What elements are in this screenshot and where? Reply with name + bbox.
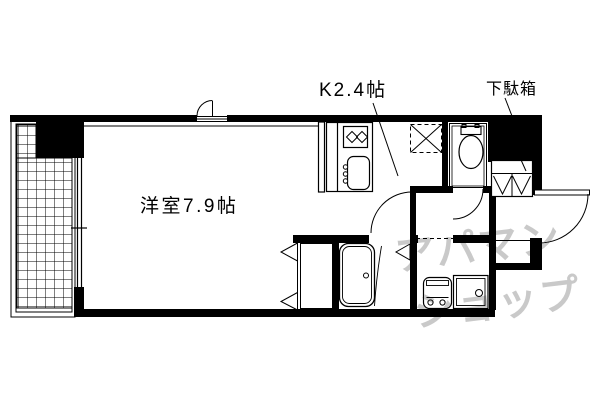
closet-bifold-door	[281, 293, 298, 311]
closet	[281, 243, 333, 310]
window-swing-arc	[197, 101, 213, 117]
bath-fold-door	[396, 244, 410, 260]
closet-interior	[301, 244, 333, 309]
kitchen-counter	[327, 123, 373, 192]
sink-knob	[343, 179, 347, 183]
entrance-door-leaf	[535, 190, 590, 195]
shoebox-label-leader	[505, 98, 512, 116]
kitchen-sink	[348, 157, 370, 190]
sink-knob	[343, 172, 347, 176]
balcony-tile-grid	[17, 158, 72, 308]
wall-closet-bath-top	[293, 235, 369, 243]
wall-washroom-top	[453, 235, 490, 243]
shoe-cabinet-label: 下駄箱	[486, 82, 537, 98]
vanity-basin	[424, 278, 452, 309]
wall-kitchen-toilet	[442, 115, 448, 193]
wall-bath-left	[333, 240, 339, 310]
entrance-door-arc	[539, 194, 588, 243]
wall-kitchen-divider	[319, 122, 325, 192]
toilet-door-arc	[453, 189, 483, 219]
bathtub-inner	[343, 247, 372, 304]
main-room-label: 洋室7.9帖	[140, 197, 238, 216]
kitchen-label-leader	[373, 103, 398, 176]
sliding-window	[71, 158, 87, 287]
wall-hall-top	[410, 186, 453, 193]
top-window	[197, 101, 227, 122]
floorplan-drawing	[0, 0, 600, 400]
bathroom	[340, 244, 411, 307]
toilet-bowl	[459, 136, 483, 169]
wall-shoebox-mass	[488, 115, 542, 162]
bath-door-swing	[375, 246, 382, 306]
wall-bath-right	[410, 243, 417, 310]
refrigerator-space-x-box	[411, 125, 442, 153]
bathtub-drain	[364, 273, 369, 278]
wall-balcony-block	[36, 119, 84, 158]
closet-bifold-door	[281, 243, 298, 261]
kitchen-label: K2.4帖	[319, 81, 387, 100]
sink-knob	[343, 165, 347, 169]
bathtub	[340, 244, 375, 307]
wall-bottom	[74, 309, 495, 317]
kitchen-door-arc	[371, 192, 412, 233]
x-box-cross	[411, 125, 442, 153]
toilet-room	[450, 124, 487, 220]
washroom	[416, 239, 488, 309]
wall-washroom-right	[489, 193, 496, 310]
balcony-tile-grid	[17, 125, 36, 158]
floorplan-canvas: 洋室7.9帖 K2.4帖 下駄箱 アパマン ショップ	[0, 0, 600, 400]
